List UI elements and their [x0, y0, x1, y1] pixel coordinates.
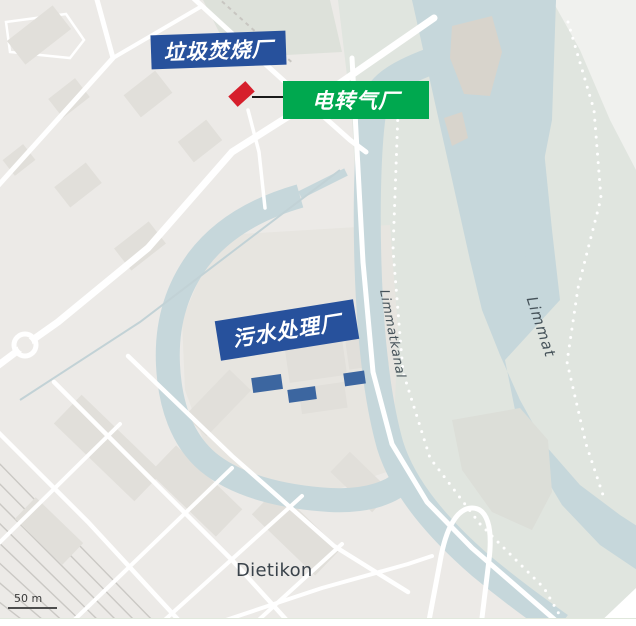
- scale-bar-line: [8, 607, 57, 609]
- annotation-power-to-gas-plant: 电转气厂: [283, 81, 429, 119]
- annotation-power-to-gas-label: 电转气厂: [312, 85, 400, 115]
- map-canvas[interactable]: 垃圾焚烧厂 电转气厂 污水处理厂 Limmatkanal Limmat Diet…: [0, 0, 636, 626]
- annotation-incineration-label: 垃圾焚烧厂: [163, 33, 274, 67]
- annotation-incineration-plant: 垃圾焚烧厂: [150, 31, 286, 70]
- map-bottom-margin: [0, 618, 636, 626]
- scale-bar-label: 50 m: [8, 592, 57, 605]
- marker-connector-line: [252, 96, 283, 98]
- city-label-dietikon: Dietikon: [236, 560, 313, 581]
- scale-bar: 50 m: [8, 592, 57, 609]
